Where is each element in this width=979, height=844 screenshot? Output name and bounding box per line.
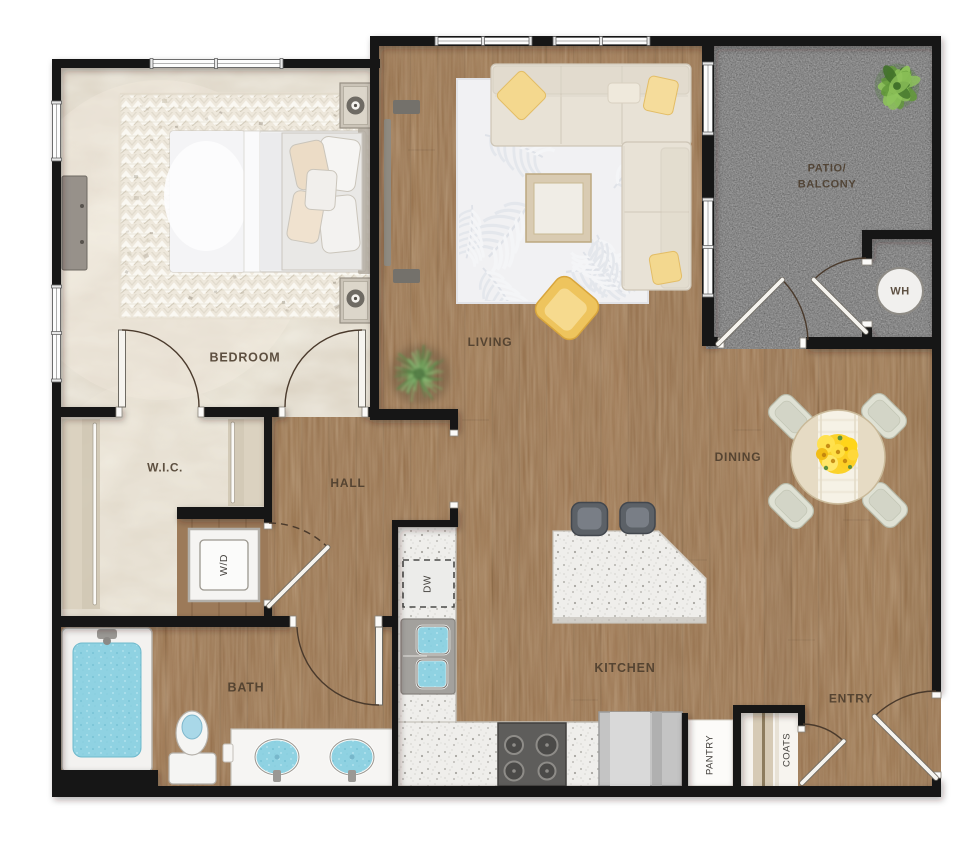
- svg-text:COATS: COATS: [782, 733, 793, 767]
- svg-text:W.I.C.: W.I.C.: [147, 461, 183, 475]
- svg-text:W/D: W/D: [218, 554, 230, 576]
- svg-text:KITCHEN: KITCHEN: [594, 661, 655, 675]
- svg-text:LIVING: LIVING: [468, 335, 513, 349]
- svg-text:WH: WH: [890, 286, 909, 298]
- svg-text:ENTRY: ENTRY: [829, 692, 873, 706]
- svg-text:PANTRY: PANTRY: [705, 735, 716, 775]
- svg-text:HALL: HALL: [330, 476, 365, 490]
- svg-text:BEDROOM: BEDROOM: [210, 351, 281, 365]
- svg-text:PATIO/: PATIO/: [808, 163, 847, 175]
- svg-text:BALCONY: BALCONY: [798, 179, 857, 191]
- svg-text:DINING: DINING: [715, 450, 762, 464]
- svg-text:BATH: BATH: [228, 681, 265, 695]
- svg-text:DW: DW: [423, 575, 434, 593]
